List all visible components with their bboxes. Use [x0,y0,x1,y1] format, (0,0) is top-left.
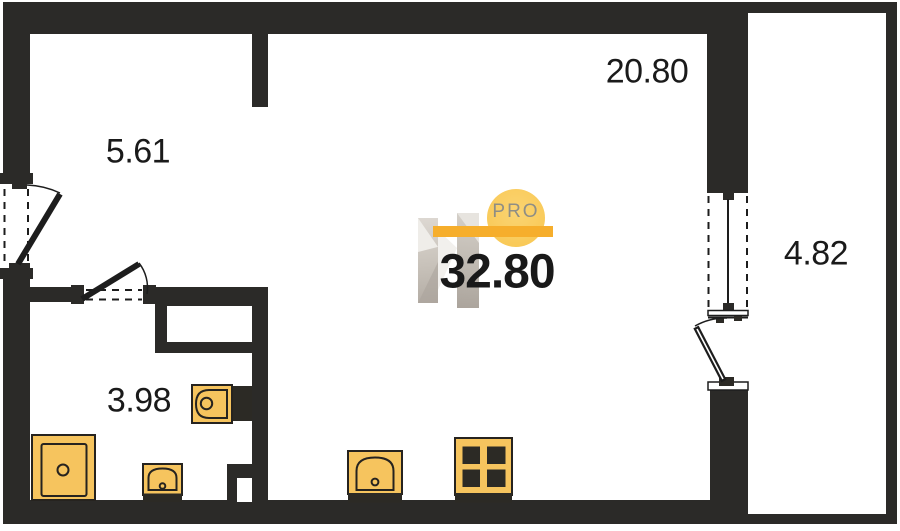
floor-plan: PRO 32.80 5.61 20.80 4.82 3.98 [0,0,900,531]
toilet-icon [192,385,252,423]
shower-icon [32,435,95,500]
kitchen-sink-icon [348,451,402,503]
accent-bar [433,226,553,237]
bathroom-sink-icon [143,464,182,502]
stove-icon [455,438,512,503]
room-area-label-living-room: 20.80 [606,53,689,92]
balcony-window [708,196,748,316]
pro-badge-label: PRO [492,201,539,223]
balcony-door [695,316,748,390]
bathroom-door [82,263,148,300]
entrance-door [5,185,61,264]
pro-badge: PRO [487,189,545,247]
room-area-label-balcony: 4.82 [784,235,848,274]
room-area-label-hallway: 5.61 [106,133,170,172]
total-area-label: 32.80 [439,245,554,300]
room-area-label-bathroom: 3.98 [107,382,171,421]
